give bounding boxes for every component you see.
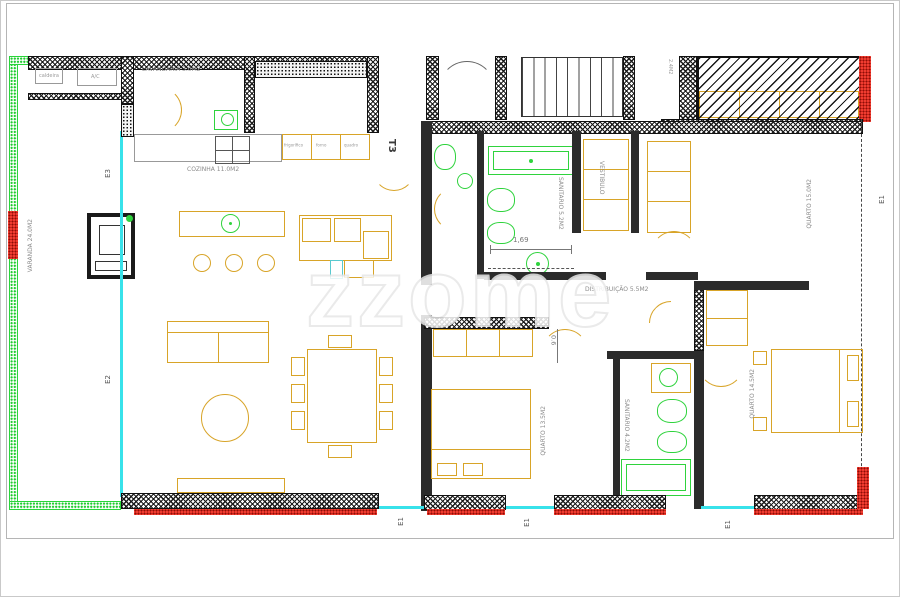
- room-label-distribuicao: DISTRIBUIÇÃO 5.5M2: [585, 287, 648, 293]
- boiler-label: caldeira: [39, 74, 59, 79]
- bidet: [657, 431, 687, 453]
- wall-bottom: [554, 495, 666, 510]
- wall-red-segment-left: [8, 211, 18, 259]
- pillow: [847, 355, 859, 381]
- chair: [291, 357, 305, 376]
- elevation-marker-e2: E2: [104, 375, 112, 384]
- dimension-label-small: 0.6: [550, 335, 557, 345]
- wall-red-segment-top-right: [859, 56, 871, 122]
- door-arc-wc: [434, 187, 478, 231]
- elevation-marker-e1-right: E1: [878, 195, 886, 204]
- wardrobe-divider: [706, 318, 748, 319]
- wall-red-bottom: [554, 509, 666, 515]
- toilet: [487, 188, 515, 212]
- wall-suite-bath-left: [613, 351, 620, 496]
- dining-table: [307, 349, 377, 443]
- wall-segment: [631, 131, 639, 233]
- plan-type-label: T3: [386, 139, 397, 153]
- chair: [379, 357, 393, 376]
- window-glazing-line-bottom: [701, 506, 754, 509]
- wall-segment: [623, 56, 635, 120]
- doorway-gap: [421, 285, 432, 315]
- wall-red-bottom-left: [134, 509, 377, 515]
- wall-bottom: [424, 495, 506, 510]
- room-label-quarto-2: QUARTO 14.5M2: [750, 369, 756, 419]
- wall-bedroom-2-left-hatched: [694, 281, 704, 351]
- pillow: [463, 463, 483, 476]
- oven-label: forno: [316, 144, 326, 148]
- elevation-marker-e3: E3: [104, 169, 112, 178]
- elevation-marker-e1: E1: [724, 520, 732, 529]
- stool: [257, 254, 275, 272]
- void-hatched-area: [697, 56, 861, 122]
- nightstand: [753, 417, 767, 431]
- wall-segment: [679, 56, 697, 122]
- kitchen-window: [215, 136, 250, 164]
- wall-kitchen-top: [255, 61, 367, 78]
- wall-boiler-closet: [28, 93, 124, 100]
- panel-label: quadro: [344, 144, 358, 148]
- pillow: [437, 463, 457, 476]
- stool: [225, 254, 243, 272]
- chair: [379, 411, 393, 430]
- wall-entrance-left: [426, 56, 439, 120]
- wall-bottom-right: [754, 495, 863, 510]
- wall-red-bottom-right: [754, 509, 863, 515]
- dimension-label: 1,69: [513, 237, 529, 244]
- window-glazing-line-bottom: [506, 506, 554, 509]
- threshold-dashed-line: [488, 268, 574, 269]
- status-dot-icon: [126, 215, 133, 222]
- cabinet-divider: [340, 134, 341, 160]
- dimension-line: [490, 249, 572, 250]
- dishwasher-unit: [334, 218, 361, 242]
- wardrobe-divider: [499, 329, 500, 357]
- bathtub-drain: [529, 159, 533, 163]
- room-label-quarto-3: QUARTO 13.5M2: [541, 406, 547, 456]
- toilet: [434, 144, 456, 170]
- cabinet-unit: [363, 231, 389, 259]
- wardrobe-divider: [583, 169, 629, 170]
- wall-red-segment-right: [857, 467, 869, 509]
- door-arc-bedroom-1: [651, 231, 697, 277]
- wall-bathroom-bottom: [484, 272, 606, 280]
- room-label-sanitario-principal: SANITARIO 5.2M2: [557, 177, 563, 230]
- wardrobe-bedroom-1: [647, 141, 691, 233]
- wall-pillar: [121, 104, 134, 137]
- room-label-cozinha: COZINHA 11.0M2: [187, 167, 239, 173]
- bed-cover-line: [839, 349, 840, 433]
- shower-inner: [626, 464, 686, 491]
- door-arc-kitchen: [373, 149, 415, 191]
- wall-bathroom-top: [421, 121, 863, 134]
- door-arc-laundry: [136, 87, 182, 133]
- window-glazing-line-left: [120, 131, 123, 497]
- elevation-marker-e1: E1: [523, 518, 531, 527]
- area-label-small: 2.4M2: [667, 59, 672, 74]
- wall-suite-bath-top: [607, 351, 699, 359]
- varanda-edge-strip-bottom: [9, 501, 121, 510]
- sofa-cushion-line: [218, 332, 219, 363]
- room-label-sanitario-suite: SANITARIO 4.2M2: [623, 399, 629, 452]
- wall-red-bottom: [427, 509, 505, 515]
- nightstand: [753, 351, 767, 365]
- dimension-tick: [571, 245, 572, 254]
- sink-unit: [302, 218, 331, 242]
- washbasin: [659, 368, 678, 387]
- glass-box: [330, 260, 343, 279]
- wall-bedroom-3-top: [424, 317, 549, 329]
- wall-entrance-right: [495, 56, 507, 120]
- varanda-edge-strip: [9, 56, 18, 508]
- wardrobe-divider: [583, 199, 629, 200]
- wall-bedroom-2-top: [694, 281, 809, 290]
- washing-machine-drum: [221, 113, 234, 126]
- wall-bottom-left: [121, 493, 379, 509]
- cabinet-low: [344, 260, 374, 278]
- room-label-quarto-1: QUARTO 15.0M2: [807, 179, 813, 229]
- wardrobe-divider: [647, 201, 691, 202]
- wall-segment: [367, 56, 379, 133]
- washing-machine-dot: [536, 262, 540, 266]
- wardrobe-divider: [466, 329, 467, 357]
- wardrobe-divider: [647, 171, 691, 172]
- wall-segment: [244, 56, 255, 133]
- door-arc-bedroom-3: [542, 329, 588, 375]
- chair: [291, 411, 305, 430]
- kitchen-counter: [134, 134, 282, 162]
- boundary-dashed-right: [861, 119, 863, 511]
- fridge-label: frigorífico: [284, 144, 303, 148]
- stairs: [521, 57, 623, 117]
- entrance-door-arc: [439, 61, 495, 117]
- elevation-marker-e1: E1: [397, 517, 405, 526]
- pillow: [847, 401, 859, 427]
- bed-cover-line: [431, 449, 531, 450]
- window-glazing-line-bottom: [379, 506, 424, 509]
- sideboard: [177, 478, 285, 493]
- wall-segment: [121, 56, 134, 104]
- wardrobe-bedroom-3: [433, 329, 533, 357]
- cabinet-divider: [311, 134, 312, 160]
- room-label-vestibulo: VESTIBULO: [598, 161, 604, 195]
- coffee-table: [201, 394, 249, 442]
- chair: [379, 384, 393, 403]
- floor-plan: zzome VARANDA 24.0M2 E3 E2 caldeira A/C …: [0, 0, 900, 597]
- chair: [328, 335, 352, 348]
- ac-label: A/C: [91, 75, 100, 80]
- chair: [328, 445, 352, 458]
- wall-bathroom-right: [572, 131, 581, 233]
- stool: [193, 254, 211, 272]
- toilet: [657, 399, 687, 423]
- room-label-varanda: VARANDA 24.0M2: [28, 219, 34, 272]
- wardrobe-vestibulo: [583, 139, 629, 231]
- cooktop-dot: [229, 222, 232, 225]
- door-arc-bedroom-2: [698, 341, 744, 387]
- bidet: [487, 222, 515, 244]
- chair: [291, 384, 305, 403]
- wall-wc-partition: [477, 131, 484, 279]
- dimension-tick: [490, 245, 491, 254]
- room-label-lavandaria: LAVANDARIA 3.0M2: [142, 67, 201, 73]
